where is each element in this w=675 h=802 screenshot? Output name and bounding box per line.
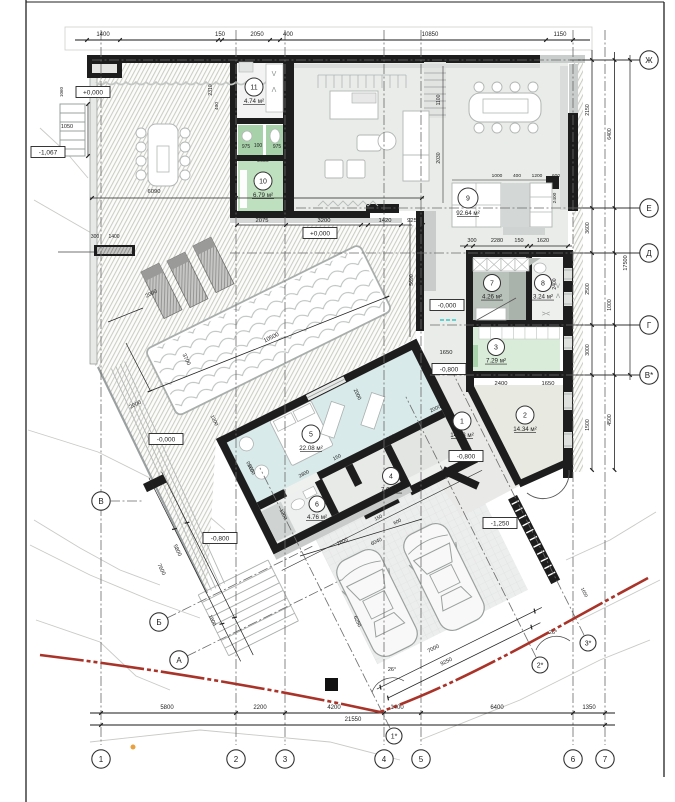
svg-text:7: 7: [603, 755, 608, 764]
svg-text:5: 5: [309, 431, 313, 438]
svg-text:7: 7: [490, 280, 494, 287]
svg-text:150: 150: [215, 32, 226, 38]
svg-text:1*: 1*: [391, 734, 398, 741]
svg-text:6: 6: [571, 755, 576, 764]
svg-text:Ж: Ж: [645, 56, 653, 65]
svg-text:1420: 1420: [379, 218, 392, 224]
svg-text:3: 3: [494, 344, 498, 351]
svg-text:1200: 1200: [532, 173, 543, 179]
svg-text:300: 300: [467, 238, 476, 244]
svg-text:100: 100: [254, 143, 263, 149]
svg-text:400: 400: [214, 102, 220, 110]
svg-text:3*: 3*: [585, 641, 592, 648]
svg-text:2400: 2400: [552, 192, 558, 203]
svg-text:Б: Б: [156, 618, 161, 627]
svg-text:21550: 21550: [345, 717, 362, 723]
svg-text:6: 6: [315, 501, 319, 508]
svg-text:2050: 2050: [250, 32, 264, 38]
svg-text:22.08 м²: 22.08 м²: [299, 445, 323, 452]
svg-text:1: 1: [460, 418, 464, 425]
svg-text:400: 400: [283, 32, 294, 38]
svg-text:Г: Г: [647, 321, 652, 330]
svg-text:1350: 1350: [582, 705, 596, 711]
svg-text:1100: 1100: [436, 94, 442, 105]
svg-text:7.03 м²: 7.03 м²: [381, 487, 401, 494]
svg-text:5: 5: [419, 755, 424, 764]
svg-text:-1,250: -1,250: [491, 520, 510, 527]
svg-text:975: 975: [242, 144, 251, 150]
svg-text:3200: 3200: [318, 218, 331, 224]
svg-text:14.34 м²: 14.34 м²: [513, 426, 537, 433]
svg-text:-0,800: -0,800: [440, 366, 459, 373]
svg-text:В: В: [98, 497, 103, 506]
svg-text:4: 4: [382, 755, 387, 764]
svg-text:2150: 2150: [585, 104, 591, 116]
svg-text:6400: 6400: [490, 705, 504, 711]
svg-text:1400: 1400: [390, 705, 404, 711]
svg-text:1: 1: [99, 755, 104, 764]
svg-text:2400: 2400: [495, 381, 508, 387]
svg-text:2400: 2400: [552, 278, 558, 289]
svg-text:1400: 1400: [108, 234, 119, 240]
svg-text:9: 9: [466, 195, 470, 202]
svg-text:Е: Е: [646, 204, 651, 213]
svg-text:2030: 2030: [436, 152, 442, 163]
svg-text:4: 4: [389, 473, 393, 480]
svg-text:400: 400: [513, 173, 521, 179]
svg-text:1000: 1000: [492, 173, 503, 179]
svg-text:-0,000: -0,000: [157, 436, 176, 443]
svg-text:-1,067: -1,067: [39, 149, 58, 156]
svg-text:3000: 3000: [585, 344, 591, 356]
svg-text:10: 10: [259, 178, 267, 185]
svg-text:А: А: [176, 656, 182, 665]
svg-text:6090: 6090: [148, 189, 161, 195]
svg-text:4200: 4200: [327, 705, 341, 711]
svg-text:7.29 м²: 7.29 м²: [486, 358, 506, 365]
svg-text:><: ><: [542, 311, 550, 318]
svg-text:1050: 1050: [61, 124, 73, 130]
svg-text:10850: 10850: [422, 32, 439, 38]
svg-text:-0,800: -0,800: [457, 453, 476, 460]
svg-text:8: 8: [541, 280, 545, 287]
svg-text:Д: Д: [646, 249, 652, 258]
svg-text:4.76 м²: 4.76 м²: [307, 514, 327, 521]
svg-text:Λ: Λ: [272, 87, 277, 94]
svg-text:1650: 1650: [542, 381, 555, 387]
svg-text:Λ: Λ: [556, 294, 560, 300]
svg-text:5800: 5800: [160, 705, 174, 711]
svg-text:26°: 26°: [388, 667, 396, 673]
svg-text:150: 150: [514, 238, 523, 244]
svg-text:2050: 2050: [257, 158, 269, 164]
svg-text:-0,000: -0,000: [438, 302, 457, 309]
svg-text:2310: 2310: [208, 84, 214, 95]
svg-text:4.26 м²: 4.26 м²: [482, 294, 502, 301]
svg-text:3600: 3600: [585, 222, 591, 234]
svg-text:+0,000: +0,000: [310, 230, 330, 237]
svg-text:1150: 1150: [554, 32, 568, 38]
svg-text:925: 925: [407, 218, 417, 224]
svg-text:-0,800: -0,800: [211, 535, 230, 542]
svg-text:2200: 2200: [253, 705, 267, 711]
svg-text:1650: 1650: [440, 350, 453, 356]
svg-text:3: 3: [283, 755, 288, 764]
svg-text:2: 2: [234, 755, 239, 764]
svg-text:6.79 м²: 6.79 м²: [253, 192, 273, 199]
svg-text:300: 300: [91, 234, 100, 240]
svg-text:1500: 1500: [585, 419, 591, 431]
svg-text:1060: 1060: [59, 86, 64, 97]
svg-text:14.38 м²: 14.38 м²: [450, 432, 474, 439]
svg-text:17500: 17500: [623, 255, 629, 270]
svg-text:975: 975: [273, 144, 282, 150]
svg-text:V: V: [272, 71, 277, 78]
svg-text:3.24 м²: 3.24 м²: [533, 294, 553, 301]
svg-text:2075: 2075: [256, 218, 269, 224]
svg-text:6400: 6400: [607, 128, 613, 140]
svg-text:2: 2: [523, 412, 527, 419]
svg-text:В*: В*: [645, 371, 653, 380]
svg-text:1400: 1400: [96, 32, 110, 38]
svg-text:2280: 2280: [491, 238, 503, 244]
svg-text:92.64 м²: 92.64 м²: [456, 210, 480, 217]
svg-text:2500: 2500: [585, 283, 591, 295]
svg-text:2*: 2*: [537, 663, 544, 670]
svg-text:4.74 м²: 4.74 м²: [244, 98, 264, 105]
svg-text:+0,000: +0,000: [83, 89, 103, 96]
svg-text:4500: 4500: [607, 414, 613, 426]
svg-text:600: 600: [552, 173, 560, 179]
svg-text:11: 11: [250, 84, 257, 91]
svg-text:1000: 1000: [607, 299, 613, 311]
svg-text:1620: 1620: [537, 238, 549, 244]
